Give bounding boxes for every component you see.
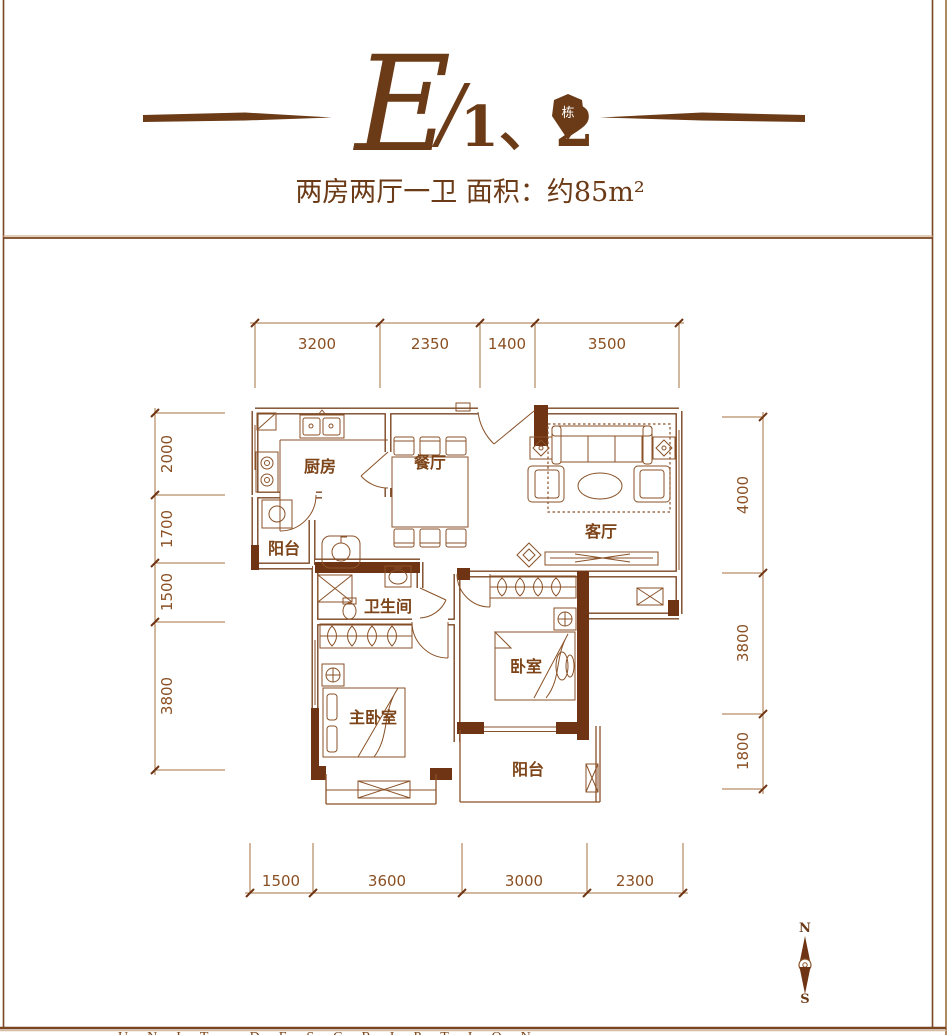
bedroom-furniture: [490, 576, 576, 700]
dim-top-3: 1400: [488, 335, 526, 353]
left-balcony-furniture: [262, 500, 292, 528]
room-label-kitchen: 厨房: [304, 457, 336, 476]
dim-bottom-4: 2300: [616, 872, 654, 890]
footer-caption: UNIT DESCRIPTION: [118, 1030, 550, 1035]
bedroom-nightstand-icon: [554, 608, 576, 630]
stove-icon: [256, 452, 278, 492]
armchair-left-icon: [528, 466, 564, 502]
side-table-lamp-right-icon: [653, 437, 675, 459]
dim-left-4: 3800: [158, 677, 176, 715]
floorplan-canvas: E / 1、2 栋 两房两厅一卫 面积：约85m² 3200 2350 1400…: [0, 0, 948, 1035]
dimension-chain-right: 4000 3800 1800: [722, 412, 767, 794]
master-bedroom-furniture: [320, 624, 412, 757]
dim-left-1: 2000: [158, 435, 176, 473]
room-label-dining: 餐厅: [413, 453, 446, 472]
compass-needle-south-icon: [800, 967, 811, 994]
badge-label: 栋: [561, 105, 574, 121]
header-subtitle: 两房两厅一卫 面积：约85m²: [295, 177, 644, 208]
master-bay-window: [326, 774, 436, 804]
dim-right-3: 1800: [734, 732, 752, 770]
header-rule-right: [600, 113, 805, 123]
decor-diamond-icon: [517, 543, 541, 567]
dim-bottom-3: 3000: [505, 872, 543, 890]
room-label-balcony-left: 阳台: [268, 539, 300, 558]
header-rule-left: [143, 113, 332, 123]
compass-north-label: N: [799, 921, 811, 936]
header-block: E / 1、2 栋 两房两厅一卫 面积：约85m²: [143, 28, 805, 208]
dimension-chain-left: 2000 1700 1500 3800: [151, 408, 225, 775]
dim-bottom-2: 3600: [368, 872, 406, 890]
side-table-lamp-left-icon: [530, 437, 552, 459]
dim-left-3: 1500: [158, 573, 176, 611]
room-label-balcony-bottom: 阳台: [512, 760, 544, 779]
dimension-chain-bottom: 1500 3600 3000 2300: [245, 843, 688, 897]
dim-bottom-1: 1500: [262, 872, 300, 890]
tv-cabinet-icon: [545, 552, 658, 565]
sofa-icon: [552, 426, 652, 464]
coffee-table-icon: [578, 473, 622, 499]
dim-right-1: 4000: [734, 476, 752, 514]
room-label-bathroom: 卫生间: [364, 597, 412, 616]
bedroom-wardrobe-icon: [490, 576, 576, 598]
room-label-living: 客厅: [585, 522, 617, 541]
compass-south-label: S: [800, 992, 809, 1007]
dimension-chain-top: 3200 2350 1400 3500: [250, 319, 684, 388]
dim-left-2: 1700: [158, 510, 176, 548]
dim-top-1: 3200: [298, 335, 336, 353]
armchair-right-icon: [634, 466, 670, 502]
toilet-icon: [343, 598, 356, 619]
dim-right-2: 3800: [734, 624, 752, 662]
title-script-letter: E: [353, 28, 451, 182]
master-nightstand-icon: [322, 664, 344, 686]
room-label-bedroom: 卧室: [510, 657, 542, 676]
dining-chairs-bottom: [394, 529, 466, 547]
master-wardrobe-icon: [320, 624, 412, 648]
floorplan-page: E / 1、2 栋 两房两厅一卫 面积：约85m² 3200 2350 1400…: [0, 0, 948, 1035]
right-bay-window: [637, 588, 663, 605]
compass: N S: [799, 921, 811, 1007]
dim-top-2: 2350: [411, 335, 449, 353]
dim-top-4: 3500: [588, 335, 626, 353]
washing-machine-icon: [262, 500, 292, 528]
room-label-master-bedroom: 主卧室: [349, 708, 397, 727]
